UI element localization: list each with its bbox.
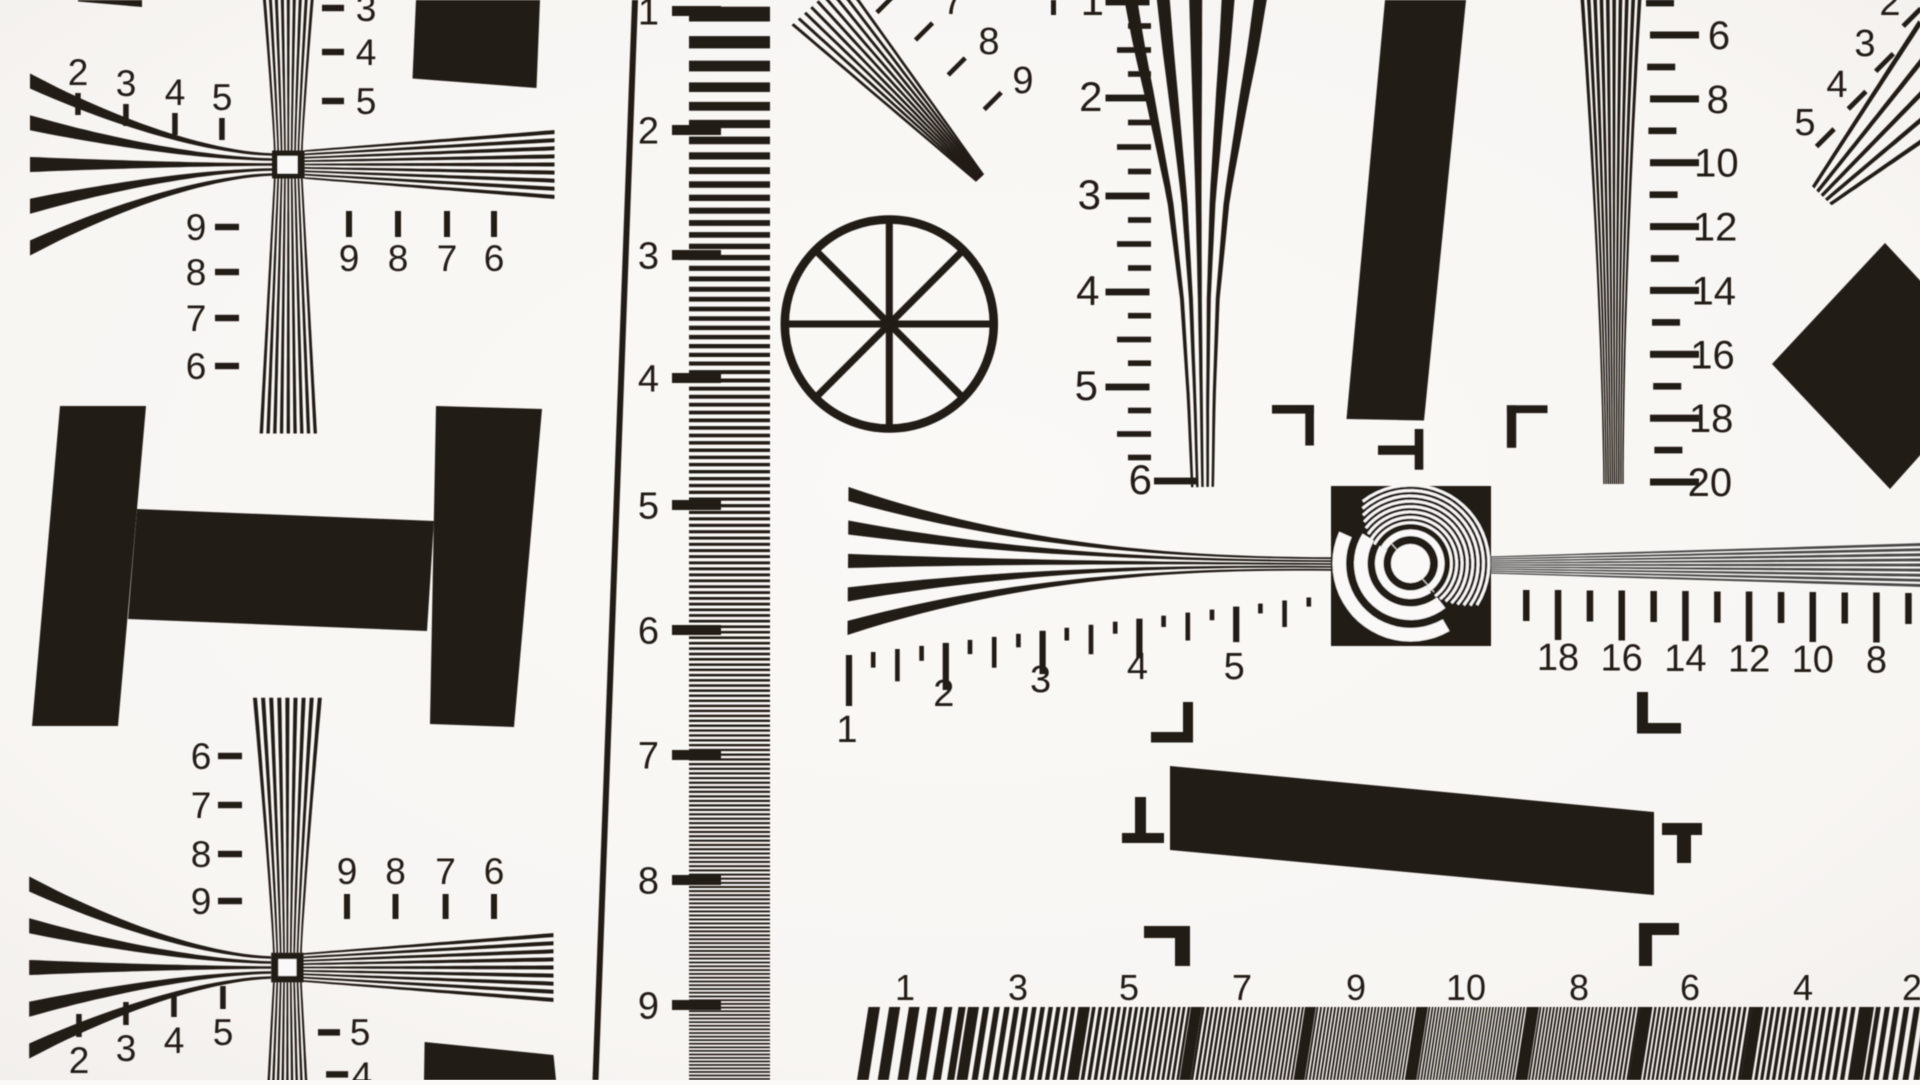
svg-text:16: 16 <box>1690 333 1735 377</box>
svg-text:20: 20 <box>1688 461 1733 505</box>
svg-text:4: 4 <box>638 359 659 401</box>
svg-text:5: 5 <box>638 486 659 528</box>
svg-text:3: 3 <box>1854 23 1875 65</box>
svg-text:7: 7 <box>191 785 212 826</box>
svg-text:4: 4 <box>352 1055 373 1080</box>
svg-text:8: 8 <box>388 238 409 279</box>
svg-text:9: 9 <box>339 238 360 279</box>
svg-text:2: 2 <box>1902 967 1920 1008</box>
svg-text:7: 7 <box>942 0 963 23</box>
svg-text:3: 3 <box>1078 171 1101 218</box>
svg-text:2: 2 <box>68 52 89 93</box>
svg-text:9: 9 <box>337 851 358 892</box>
svg-text:7: 7 <box>186 298 207 339</box>
svg-text:2: 2 <box>1079 73 1102 120</box>
svg-text:3: 3 <box>1030 659 1051 701</box>
svg-text:9: 9 <box>1346 967 1366 1008</box>
svg-text:5: 5 <box>1224 646 1245 688</box>
svg-text:8: 8 <box>1707 78 1729 122</box>
svg-text:2: 2 <box>933 673 954 715</box>
svg-text:12: 12 <box>1693 206 1738 250</box>
svg-text:6: 6 <box>484 851 505 892</box>
svg-text:4: 4 <box>1826 64 1847 106</box>
svg-text:6: 6 <box>1129 456 1152 503</box>
svg-text:3: 3 <box>638 236 659 278</box>
svg-text:8: 8 <box>1866 640 1887 682</box>
svg-text:7: 7 <box>638 736 659 778</box>
svg-text:14: 14 <box>1692 269 1737 313</box>
svg-text:5: 5 <box>356 81 377 122</box>
svg-text:7: 7 <box>435 851 456 892</box>
svg-text:5: 5 <box>1119 967 1139 1008</box>
svg-text:6: 6 <box>186 346 207 387</box>
svg-text:5: 5 <box>350 1012 371 1053</box>
svg-text:6: 6 <box>484 238 505 279</box>
svg-text:16: 16 <box>1601 638 1643 680</box>
svg-text:1: 1 <box>1081 0 1104 24</box>
svg-text:7: 7 <box>437 238 458 279</box>
svg-text:5: 5 <box>1794 102 1815 144</box>
svg-text:8: 8 <box>191 834 212 875</box>
svg-text:18: 18 <box>1689 397 1734 441</box>
svg-text:3: 3 <box>1008 967 1028 1008</box>
svg-text:4: 4 <box>1076 267 1099 314</box>
svg-text:10: 10 <box>1446 967 1486 1008</box>
svg-text:10: 10 <box>1694 142 1739 186</box>
svg-text:6: 6 <box>191 736 212 777</box>
svg-text:6: 6 <box>1680 967 1700 1008</box>
svg-text:3: 3 <box>356 0 377 29</box>
svg-text:1: 1 <box>895 967 915 1008</box>
svg-text:7: 7 <box>1232 967 1252 1008</box>
svg-text:2: 2 <box>1879 0 1900 24</box>
svg-text:12: 12 <box>1728 639 1770 681</box>
svg-text:14: 14 <box>1664 638 1706 680</box>
svg-text:5: 5 <box>212 77 233 118</box>
svg-text:5: 5 <box>1075 362 1098 409</box>
svg-text:4: 4 <box>1793 967 1813 1008</box>
svg-text:5: 5 <box>213 1012 234 1053</box>
svg-text:8: 8 <box>1569 967 1589 1008</box>
svg-text:4: 4 <box>1127 646 1148 688</box>
svg-text:9: 9 <box>1012 60 1033 102</box>
svg-text:9: 9 <box>186 207 207 248</box>
svg-text:4: 4 <box>165 72 186 113</box>
svg-text:1: 1 <box>836 709 857 751</box>
svg-text:6: 6 <box>1708 14 1730 58</box>
svg-text:2: 2 <box>69 1040 90 1080</box>
svg-text:10: 10 <box>1792 639 1834 681</box>
svg-text:18: 18 <box>1537 637 1579 679</box>
svg-text:2: 2 <box>638 111 659 153</box>
svg-text:4: 4 <box>356 32 377 73</box>
svg-text:6: 6 <box>638 611 659 653</box>
svg-text:4: 4 <box>164 1020 185 1061</box>
svg-text:9: 9 <box>191 881 212 922</box>
svg-text:9: 9 <box>638 986 659 1028</box>
svg-text:8: 8 <box>978 21 999 63</box>
svg-text:3: 3 <box>116 1028 137 1069</box>
svg-text:8: 8 <box>385 851 406 892</box>
svg-text:8: 8 <box>186 252 207 293</box>
svg-text:8: 8 <box>638 861 659 903</box>
svg-text:1: 1 <box>638 0 659 34</box>
svg-text:3: 3 <box>116 63 137 104</box>
